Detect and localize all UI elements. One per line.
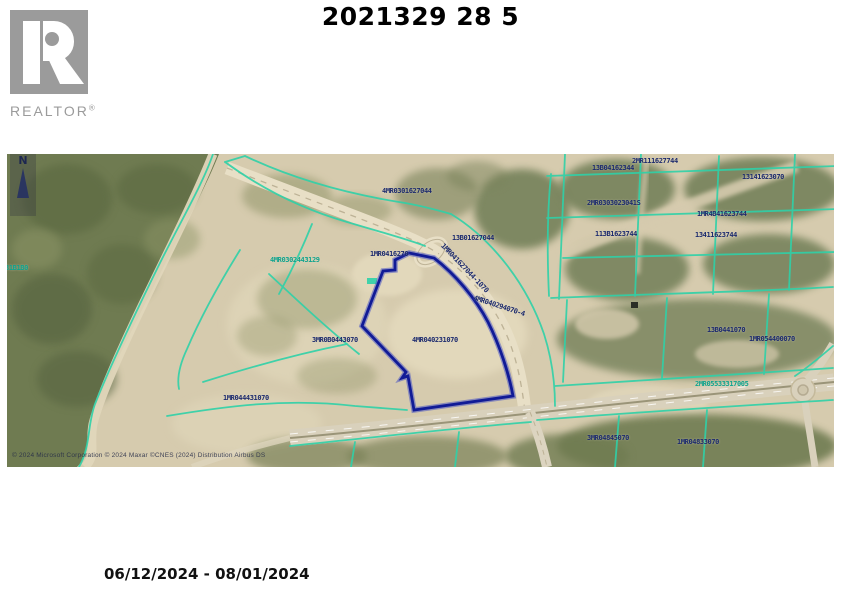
map-labels: 4MR030162704413B016270441MR04162704MR030…	[7, 154, 834, 467]
parcel-label: 1MR4B41623744	[697, 210, 747, 218]
parcel-label: 4MR040294070-4	[473, 294, 526, 318]
realtor-logo-text: REALTOR®	[10, 103, 110, 119]
parcel-label: 31B1B0	[7, 264, 28, 272]
parcel-label: 2MR05533317005	[695, 380, 748, 388]
parcel-label: 13B04162344	[592, 164, 634, 172]
aerial-parcel-map: N 4MR030162704413B016270441MR04162704MR0…	[7, 154, 834, 467]
listing-date-range: 06/12/2024 - 08/01/2024	[104, 565, 310, 583]
parcel-label: 1MR041627044-1070	[439, 242, 490, 294]
parcel-label: 13411623744	[695, 231, 737, 239]
parcel-label: 3MR0B0443070	[312, 336, 358, 344]
parcel-label: 13B0441070	[707, 326, 745, 334]
parcel-label: 13141623070	[742, 173, 784, 181]
parcel-label: 4MR0302443129	[270, 256, 320, 264]
parcel-label: 13B01627044	[452, 234, 494, 242]
parcel-label: 3MR04845070	[587, 434, 629, 442]
page-title: 2021329 28 5	[0, 2, 841, 31]
parcel-label: 1MR044431070	[223, 394, 269, 402]
parcel-label: 2MR0303023041S	[587, 199, 640, 207]
parcel-label: 1MR054400070	[749, 335, 795, 343]
parcel-label: 113B1623744	[595, 230, 637, 238]
parcel-label: 1MR04833070	[677, 438, 719, 446]
parcel-label: 2MR111627744	[632, 157, 678, 165]
map-attribution: © 2024 Microsoft Corporation © 2024 Maxa…	[12, 452, 265, 459]
parcel-label: 4MR040231070	[412, 336, 458, 344]
parcel-label: 4MR0301627044	[382, 187, 432, 195]
parcel-label: 1MR0416270	[370, 250, 408, 258]
